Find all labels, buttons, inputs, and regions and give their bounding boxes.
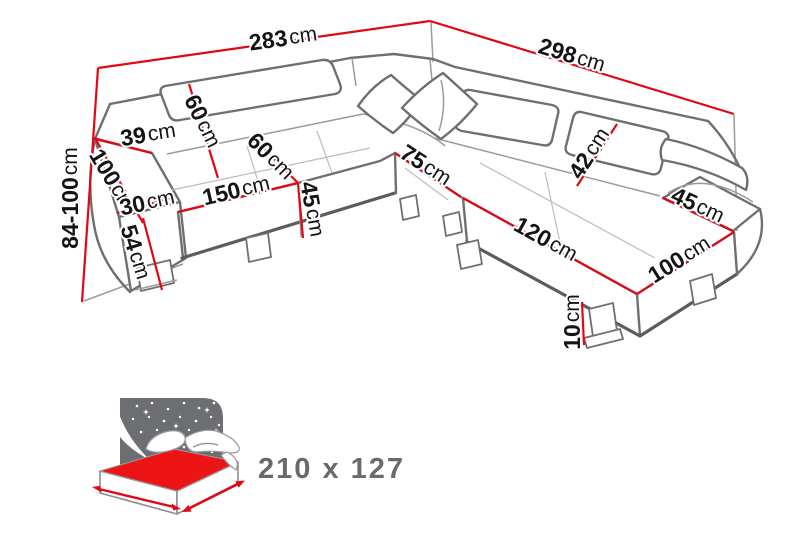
dim-label-chaise-length: 120cm: [510, 211, 582, 267]
right-armrest-base-edge: [734, 232, 737, 274]
wall-corner-line: [431, 22, 433, 62]
dim-label-total-width-right: 298cm: [536, 33, 609, 78]
sofa-leg: [690, 274, 716, 305]
dimension-diagram-page: 283cm 298cm 84-100cm 39cm 60cm 100cm 30c…: [0, 0, 800, 533]
sofa-dimension-drawing: 283cm 298cm 84-100cm 39cm 60cm 100cm 30c…: [0, 0, 800, 533]
sofa-leg: [457, 240, 482, 269]
dim-label-armrest-top-width: 39cm: [119, 117, 178, 151]
sleeping-size-label: 210 x 127: [258, 453, 405, 485]
sofa-back-left-edge: [95, 104, 110, 139]
chaise-base-corner-edge: [637, 294, 640, 336]
dim-line-84-100cm: [82, 68, 98, 302]
left-seat-divider-2: [317, 131, 332, 173]
dim-label-total-width-left: 283cm: [247, 20, 318, 55]
sofa-leg: [246, 233, 271, 262]
sleeping-function-icon: 210 x 127: [92, 395, 405, 514]
corner-back-vertical-1: [352, 58, 356, 86]
bed-duvet: [185, 430, 239, 453]
corner-back-vertical-2: [430, 60, 432, 80]
dim-label-seat-width: 150cm: [200, 170, 272, 211]
dim-label-leg-height: 10cm: [559, 294, 585, 350]
sofa-leg: [443, 212, 462, 236]
sofa-leg: [400, 195, 419, 220]
chaise-base-left-edge: [463, 198, 467, 242]
dim-label-total-height-range: 84-100cm: [57, 147, 83, 249]
sofa-drawing: [84, 22, 762, 348]
